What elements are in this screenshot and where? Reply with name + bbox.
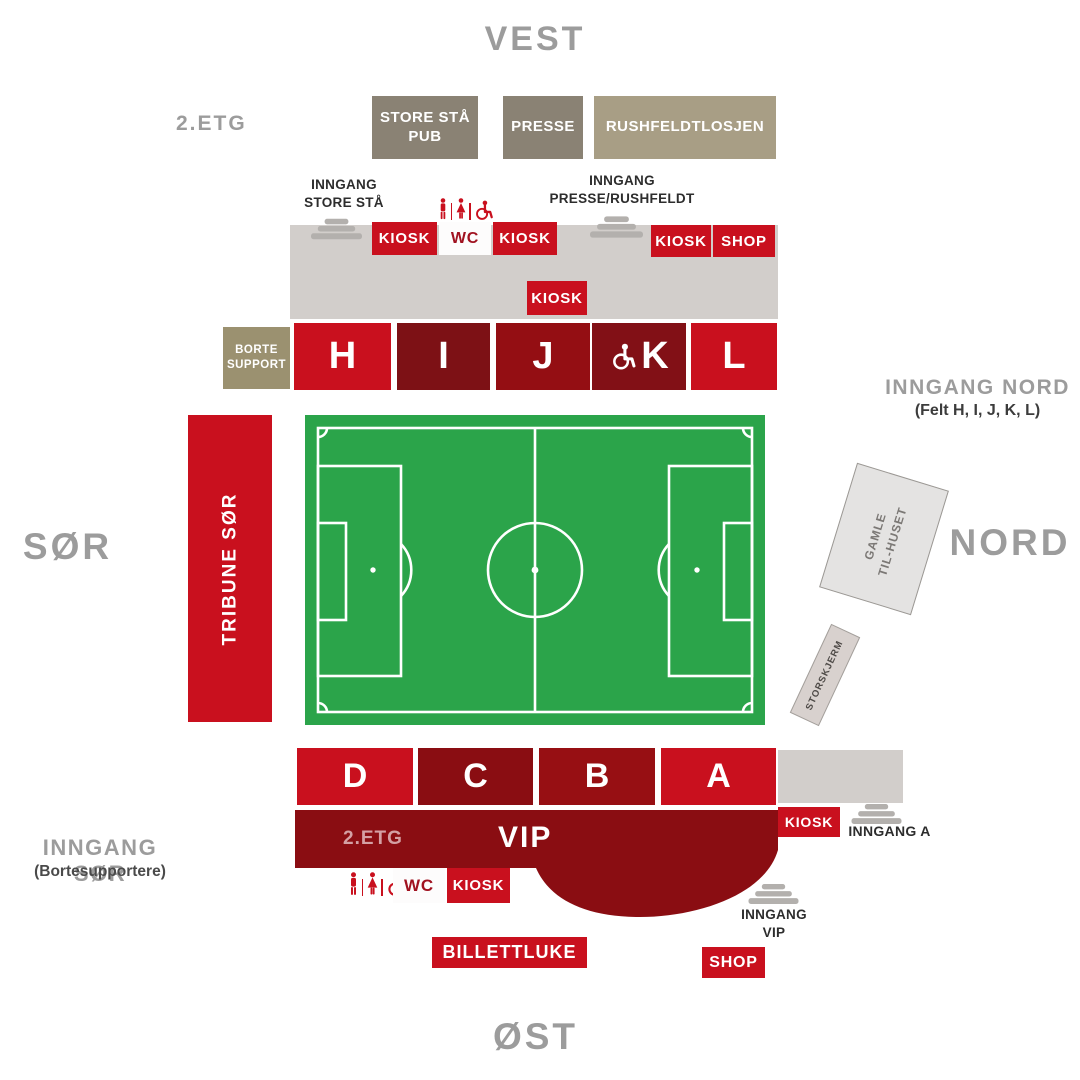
- section-j: J: [496, 323, 590, 390]
- section-k: K: [592, 323, 686, 390]
- entrance-store-staa-label: INNGANG STORE STÅ: [279, 176, 409, 211]
- stairs-icon-inngang-vip: [748, 884, 799, 904]
- gamle-til-huset-label: GAMLE TIL-HUSET: [856, 499, 911, 578]
- wheelchair-icon: [609, 343, 637, 371]
- kiosk-west-center: KIOSK: [527, 281, 587, 315]
- compass-north: NORD: [945, 522, 1075, 564]
- kiosk-west-left: KIOSK: [372, 222, 437, 255]
- compass-west: VEST: [420, 20, 650, 59]
- wc-west: WC: [439, 222, 491, 255]
- divider: [362, 879, 364, 896]
- woman-icon: [366, 872, 379, 897]
- compass-east: ØST: [488, 1016, 583, 1058]
- wheelchair-icon: [473, 200, 494, 221]
- tribune-sor-stand: TRIBUNE SØR: [188, 415, 272, 722]
- section-d: D: [297, 748, 413, 805]
- kiosk-west-far-right: KIOSK: [651, 225, 711, 257]
- stadium-map: VEST SØR NORD ØST 2.ETG STORE STÅ PUB PR…: [0, 0, 1080, 1080]
- man-icon: [348, 872, 359, 897]
- section-l: L: [691, 323, 777, 390]
- entrance-presse-rushfeldt-label: INNGANG PRESSE/RUSHFELDT: [538, 172, 706, 207]
- away-support-section: BORTE SUPPORT: [223, 327, 290, 389]
- divider: [451, 203, 453, 220]
- lounge-presse: PRESSE: [503, 96, 583, 159]
- inngang-a-label: INNGANG A: [842, 822, 937, 840]
- kiosk-inngang-a: KIOSK: [778, 807, 840, 837]
- stairs-icon-presse: [590, 216, 643, 238]
- compass-south: SØR: [20, 526, 115, 568]
- inngang-sor-note: (Bortesupportere): [14, 863, 186, 881]
- west-floor2-label: 2.ETG: [176, 112, 247, 136]
- tribune-sor-label: TRIBUNE SØR: [219, 492, 241, 645]
- section-b: B: [539, 748, 655, 805]
- man-icon: [438, 198, 448, 221]
- storskjerm-label: STORSKJERM: [804, 638, 846, 711]
- stairs-icon-store-staa: [311, 218, 362, 240]
- inngang-vip-label: INNGANG VIP: [735, 906, 813, 941]
- section-a: A: [661, 748, 776, 805]
- shop-west: SHOP: [713, 225, 775, 257]
- lounge-store-staa-pub: STORE STÅ PUB: [372, 96, 478, 159]
- divider: [381, 879, 383, 896]
- section-h: H: [294, 323, 391, 390]
- woman-icon: [455, 198, 467, 221]
- inngang-nord-label: INNGANG NORD: [885, 376, 1070, 400]
- football-pitch: [305, 415, 765, 725]
- vip-label: VIP: [498, 821, 552, 855]
- kiosk-west-right: KIOSK: [493, 222, 557, 255]
- billettluke-box: BILLETTLUKE: [432, 937, 587, 968]
- inngang-nord-note: (Felt H, I, J, K, L): [885, 402, 1070, 420]
- vip-floor2-label: 2.ETG: [343, 828, 403, 850]
- section-c: C: [418, 748, 533, 805]
- wc-east: WC: [393, 868, 445, 903]
- section-k-label: K: [641, 335, 668, 378]
- toilet-icons-west: [438, 197, 494, 221]
- stairs-icon-inngang-a: [851, 804, 902, 824]
- section-i: I: [397, 323, 490, 390]
- shop-east: SHOP: [702, 947, 765, 978]
- kiosk-east: KIOSK: [447, 868, 510, 903]
- lounge-rushfeldtlosjen: RUSHFELDTLOSJEN: [594, 96, 776, 159]
- storskjerm-big-screen: STORSKJERM: [790, 624, 860, 726]
- divider: [469, 203, 471, 220]
- gamle-til-huset-building: GAMLE TIL-HUSET: [819, 463, 949, 615]
- east-concourse-block: [778, 750, 903, 803]
